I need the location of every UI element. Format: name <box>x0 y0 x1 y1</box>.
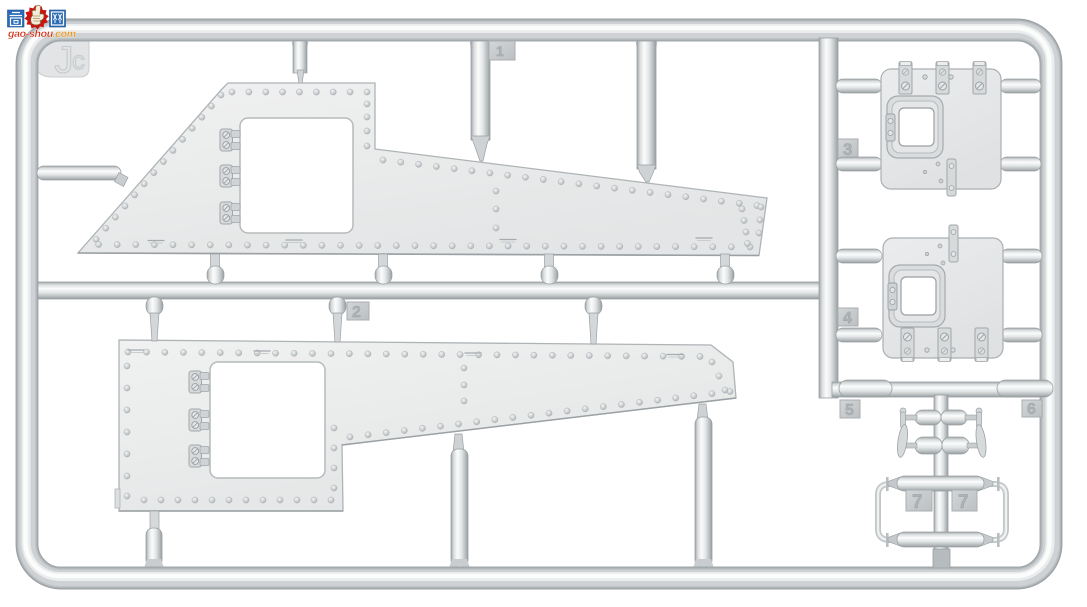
svg-text:3: 3 <box>843 140 852 159</box>
svg-text:4: 4 <box>843 310 852 327</box>
svg-text:7: 7 <box>958 492 969 513</box>
svg-text:.com: .com <box>53 28 76 40</box>
svg-text:7: 7 <box>912 492 923 513</box>
svg-text:J: J <box>55 40 74 82</box>
svg-text:6: 6 <box>1027 401 1036 418</box>
svg-text:gao-shou: gao-shou <box>7 28 54 40</box>
svg-text:c: c <box>72 45 85 75</box>
svg-text:5: 5 <box>845 402 854 419</box>
svg-text:1: 1 <box>496 43 504 59</box>
svg-text:2: 2 <box>352 304 361 321</box>
